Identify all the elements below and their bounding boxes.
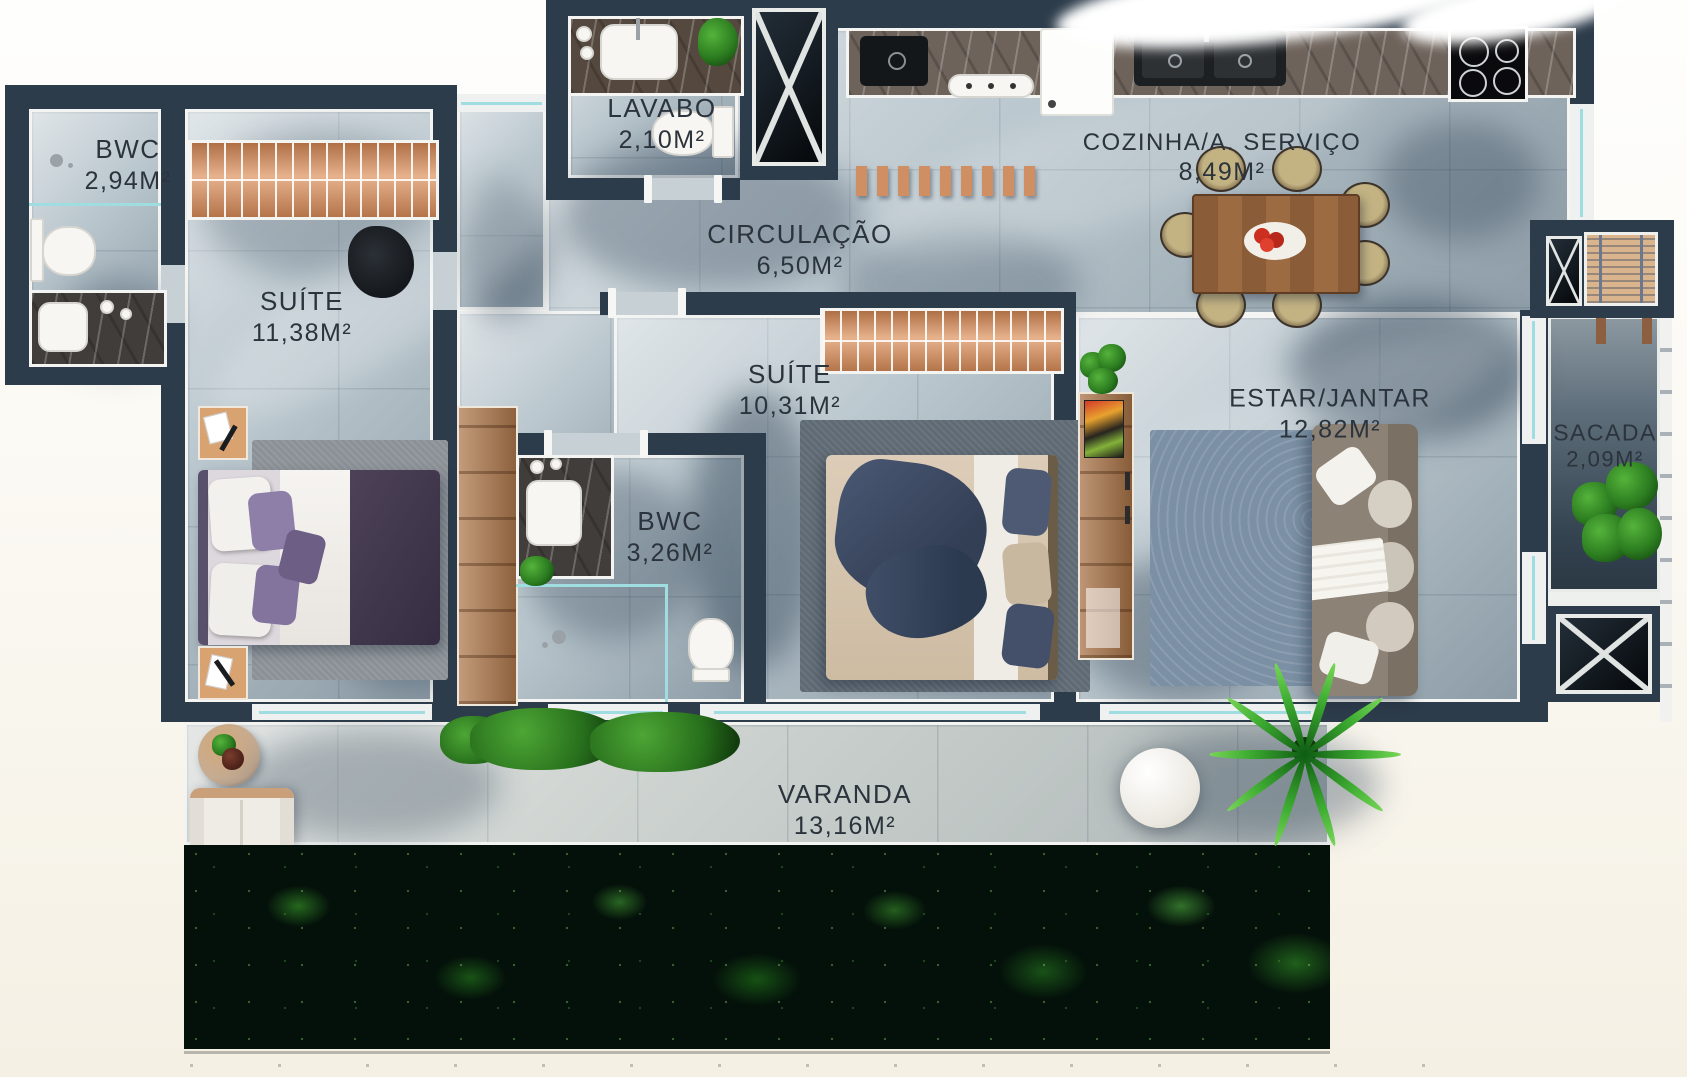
wall xyxy=(5,85,457,109)
throw-blanket xyxy=(1312,537,1389,600)
pillow xyxy=(1000,602,1055,669)
sacada-sill xyxy=(1548,592,1660,606)
toiletry xyxy=(550,458,562,470)
sliding-door-suite2 xyxy=(700,704,1040,720)
ac-leg xyxy=(1596,318,1606,344)
duct-shaft xyxy=(1546,236,1582,306)
glass-pane xyxy=(259,711,425,714)
closet-hangers xyxy=(187,140,439,220)
glass-pane xyxy=(714,711,1027,714)
nightstand xyxy=(198,646,248,700)
plant-pot xyxy=(222,748,244,770)
room-name: CIRCULAÇÃO xyxy=(707,219,892,251)
room-area: 3,26M² xyxy=(627,538,714,569)
sink xyxy=(38,302,88,352)
shower-head xyxy=(552,630,566,644)
shaft-panel xyxy=(752,8,826,166)
cushion-seam xyxy=(240,800,243,845)
toiletry xyxy=(580,46,594,60)
shower-head xyxy=(50,154,63,167)
room-name: BWC xyxy=(627,506,714,538)
floor-plan: BWC 2,94M² SUÍTE 11,38M² LAVABO 2,10M² C… xyxy=(0,0,1687,1077)
room-area: 11,38M² xyxy=(252,318,352,349)
wall xyxy=(5,85,29,385)
bed-suite1 xyxy=(198,470,440,645)
pillow xyxy=(1001,467,1053,537)
drying-rack xyxy=(856,166,1036,196)
room-label-bwc1: BWC 2,94M² xyxy=(85,134,172,196)
hedge xyxy=(184,845,1330,1049)
burner xyxy=(1459,69,1487,97)
door-jamb xyxy=(714,175,722,203)
shower-glass xyxy=(29,203,161,206)
drain xyxy=(1168,54,1182,68)
room-area: 12,82M² xyxy=(1229,414,1431,445)
room-area: 2,09M² xyxy=(1553,447,1657,474)
room-area: 13,16M² xyxy=(778,811,912,842)
sliding-door-suite1 xyxy=(252,704,432,720)
drain xyxy=(888,52,906,70)
detail xyxy=(1599,235,1602,303)
chair-frame xyxy=(190,788,294,798)
room-name: SACADA xyxy=(1553,419,1657,447)
toilet xyxy=(42,226,96,276)
headboard xyxy=(198,470,208,645)
detail xyxy=(1640,235,1643,303)
toiletry xyxy=(530,460,544,474)
room-name: VARANDA xyxy=(778,779,912,811)
room-area: 8,49M² xyxy=(1083,157,1362,188)
sphere-lamp xyxy=(1120,748,1200,828)
wall xyxy=(546,0,568,200)
armrest xyxy=(280,798,294,845)
door-jamb xyxy=(644,175,652,203)
knob xyxy=(966,83,972,89)
ac-leg xyxy=(1642,318,1652,344)
room-name: LAVABO xyxy=(607,93,716,125)
wardrobe xyxy=(457,406,518,706)
glass-pane xyxy=(1532,321,1535,439)
entry-door xyxy=(457,94,546,112)
door-opening xyxy=(614,292,680,315)
door-jamb xyxy=(608,288,616,318)
bed-suite2 xyxy=(826,455,1058,680)
ground-line xyxy=(184,1051,1330,1054)
wall xyxy=(744,433,766,722)
shaft-panel xyxy=(1556,614,1652,694)
knob xyxy=(1048,100,1056,108)
room-label-suite2: SUÍTE 10,31M² xyxy=(739,359,841,421)
fruit xyxy=(1260,238,1274,252)
room-label-cozinha: COZINHA/A. SERVIÇO 8,49M² xyxy=(1083,128,1362,188)
sink xyxy=(526,480,582,546)
door-jamb xyxy=(640,430,648,458)
wall xyxy=(161,361,185,722)
laundry-tank xyxy=(860,36,928,86)
palm-frond xyxy=(1209,750,1305,759)
toiletry xyxy=(576,26,592,42)
sacada-window xyxy=(1522,552,1546,644)
counter-appliance xyxy=(948,74,1034,98)
burner xyxy=(1495,39,1519,63)
shower-glass xyxy=(665,584,668,702)
shadow xyxy=(1380,120,1540,240)
room-label-circulacao: CIRCULAÇÃO 6,50M² xyxy=(707,219,892,281)
toiletry xyxy=(120,308,132,320)
handle xyxy=(1125,472,1130,490)
tv-console xyxy=(1078,392,1134,660)
x-brace-icon xyxy=(756,12,822,162)
armchair-dark xyxy=(348,226,414,298)
sacada-plant xyxy=(1572,462,1664,572)
door-jamb xyxy=(544,430,552,458)
pillow xyxy=(1368,480,1412,528)
room-label-varanda: VARANDA 13,16M² xyxy=(778,779,912,841)
x-brace-icon xyxy=(1560,618,1648,690)
door-opening xyxy=(650,178,716,200)
room-name: ESTAR/JANTAR xyxy=(1229,384,1431,415)
closet-hangers xyxy=(820,308,1064,374)
faucet xyxy=(636,18,640,40)
glass-pane xyxy=(1532,556,1535,641)
glass-pane xyxy=(1580,109,1583,218)
handle xyxy=(1125,506,1130,524)
room-label-sacada: SACADA 2,09M² xyxy=(1553,419,1657,474)
room-area: 2,94M² xyxy=(85,166,172,197)
lower-shaft xyxy=(1548,606,1660,702)
room-name: BWC xyxy=(85,134,172,166)
toilet-tank xyxy=(692,668,730,682)
knob xyxy=(1010,83,1016,89)
leaf-cluster xyxy=(1618,508,1662,560)
plant xyxy=(1080,344,1126,396)
room-area: 10,31M² xyxy=(739,391,841,422)
room-label-lavabo: LAVABO 2,10M² xyxy=(607,93,716,155)
room-label-estar: ESTAR/JANTAR 12,82M² xyxy=(1229,384,1431,445)
nightstand xyxy=(198,406,248,460)
door-jamb xyxy=(678,288,686,318)
room-name: SUÍTE xyxy=(739,359,841,391)
dimension-ticks xyxy=(190,1064,1490,1067)
ac-condenser-unit xyxy=(1584,232,1658,306)
toiletry xyxy=(100,300,114,314)
door-opening xyxy=(550,433,642,455)
elevator-shaft xyxy=(740,0,838,180)
glass-pane xyxy=(461,102,543,105)
burner xyxy=(1493,67,1521,95)
leaf-cluster xyxy=(1088,368,1118,394)
drain xyxy=(1238,54,1252,68)
toilet xyxy=(688,618,734,672)
sacada-door xyxy=(1522,316,1546,444)
knob xyxy=(988,83,994,89)
room-area: 6,50M² xyxy=(707,251,892,282)
dining-table xyxy=(1192,194,1360,294)
room-label-bwc2: BWC 3,26M² xyxy=(627,506,714,568)
room-area: 2,10M² xyxy=(607,125,716,156)
room-name: SUÍTE xyxy=(252,286,352,318)
palm-plant xyxy=(1240,650,1370,850)
shelf xyxy=(1086,588,1120,648)
outdoor-armchair xyxy=(190,788,294,845)
pillow xyxy=(1001,541,1052,607)
armrest xyxy=(190,798,204,845)
blanket xyxy=(348,470,440,645)
side-table xyxy=(198,724,260,786)
x-brace-icon xyxy=(1549,239,1579,303)
room-name: COZINHA/A. SERVIÇO xyxy=(1083,128,1362,157)
door-opening xyxy=(433,252,457,310)
artwork xyxy=(1084,400,1124,458)
palm-frond xyxy=(1305,750,1401,759)
kitchen-window xyxy=(1570,104,1594,222)
room-label-suite1: SUÍTE 11,38M² xyxy=(252,286,352,348)
